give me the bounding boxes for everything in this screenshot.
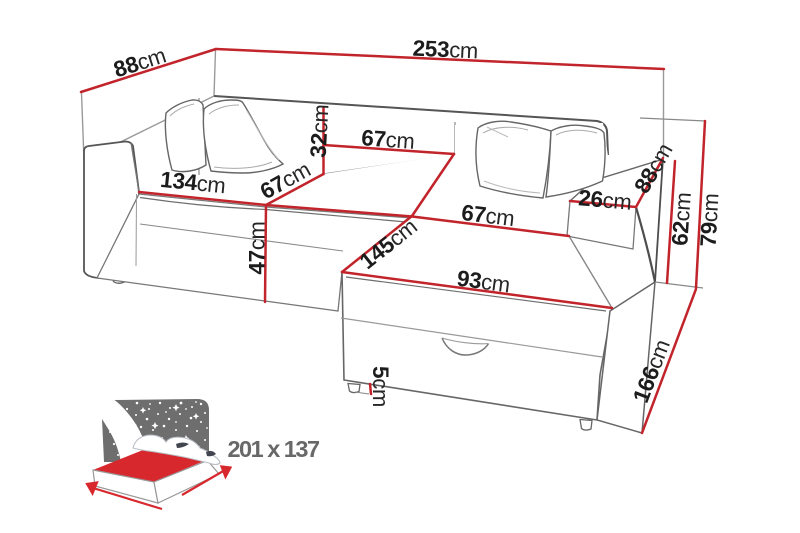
svg-text:201 x 137: 201 x 137 <box>227 436 319 462</box>
svg-text:5cm: 5cm <box>368 366 393 407</box>
svg-text:47cm: 47cm <box>245 221 270 274</box>
svg-text:67cm: 67cm <box>361 125 416 154</box>
svg-text:62cm: 62cm <box>667 192 696 247</box>
svg-text:79cm: 79cm <box>696 193 724 247</box>
svg-text:26cm: 26cm <box>577 185 632 215</box>
svg-text:32cm: 32cm <box>306 104 334 158</box>
svg-text:253cm: 253cm <box>412 36 478 64</box>
